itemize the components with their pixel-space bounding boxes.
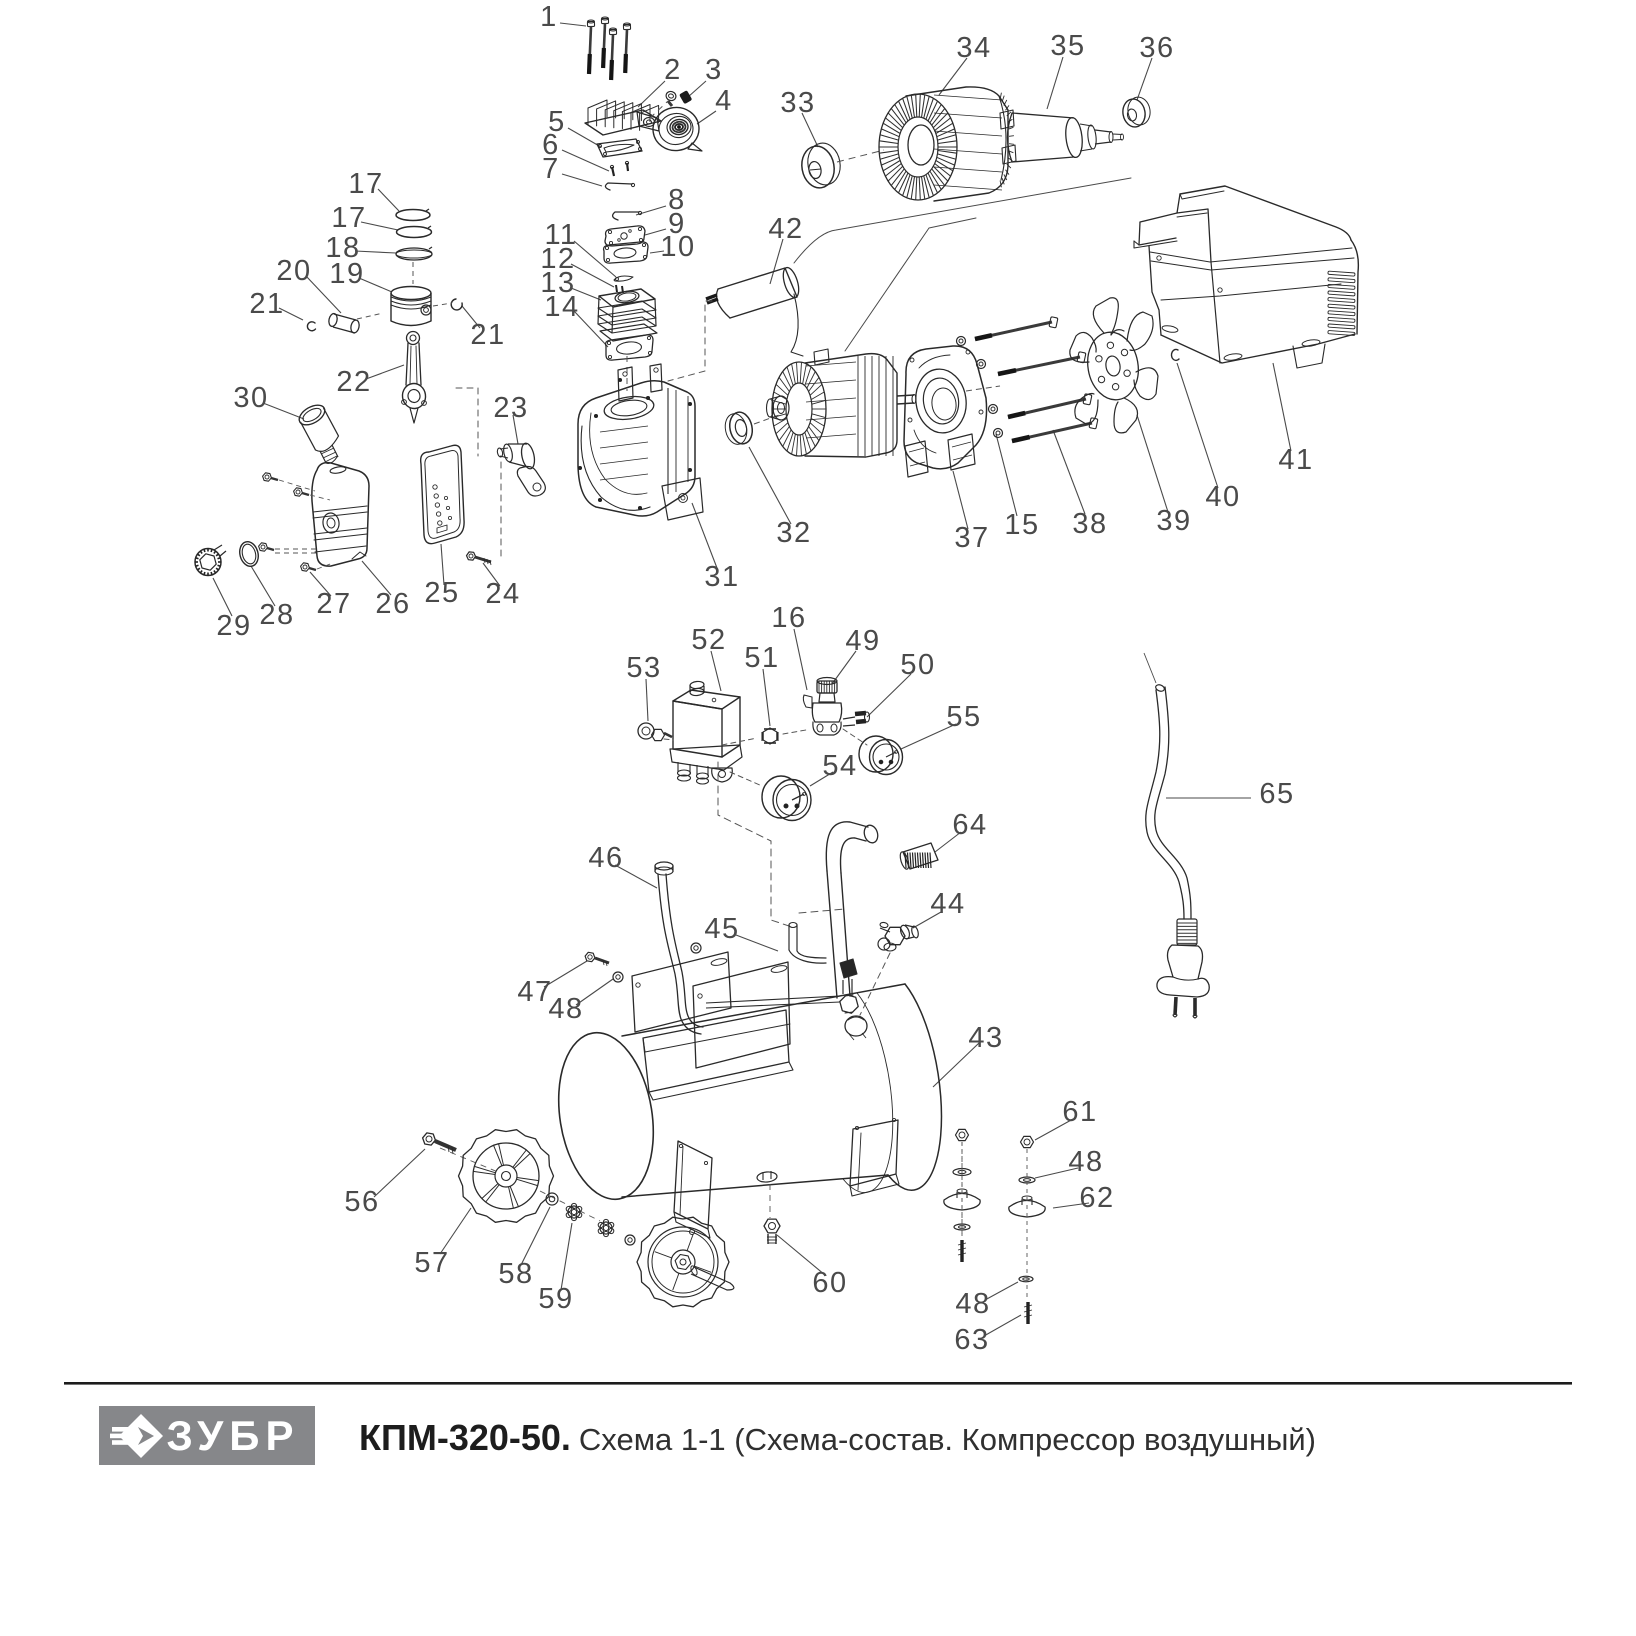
svg-text:15: 15 — [1004, 509, 1039, 541]
svg-text:65: 65 — [1259, 778, 1294, 810]
svg-text:48: 48 — [1068, 1146, 1103, 1178]
svg-text:23: 23 — [493, 392, 528, 424]
svg-text:33: 33 — [780, 87, 815, 119]
svg-text:63: 63 — [954, 1324, 989, 1356]
svg-text:48: 48 — [548, 993, 583, 1025]
svg-text:48: 48 — [955, 1288, 990, 1320]
svg-text:34: 34 — [956, 32, 991, 64]
svg-text:30: 30 — [233, 382, 268, 414]
svg-text:53: 53 — [626, 652, 661, 684]
svg-text:54: 54 — [822, 750, 857, 782]
svg-text:47: 47 — [517, 976, 552, 1008]
svg-text:49: 49 — [845, 625, 880, 657]
svg-text:43: 43 — [968, 1022, 1003, 1054]
svg-text:39: 39 — [1156, 505, 1191, 537]
svg-text:45: 45 — [704, 913, 739, 945]
svg-text:22: 22 — [336, 366, 371, 398]
svg-text:14: 14 — [544, 291, 579, 323]
svg-text:35: 35 — [1050, 30, 1085, 62]
svg-text:52: 52 — [691, 624, 726, 656]
svg-text:60: 60 — [812, 1267, 847, 1299]
svg-text:20: 20 — [276, 255, 311, 287]
svg-text:29: 29 — [216, 610, 251, 642]
svg-text:46: 46 — [588, 842, 623, 874]
svg-text:50: 50 — [900, 649, 935, 681]
svg-text:61: 61 — [1062, 1096, 1097, 1128]
svg-text:57: 57 — [414, 1247, 449, 1279]
svg-text:21: 21 — [470, 319, 505, 351]
svg-text:19: 19 — [329, 258, 364, 290]
svg-text:51: 51 — [744, 642, 779, 674]
svg-text:59: 59 — [538, 1283, 573, 1315]
svg-text:31: 31 — [704, 561, 739, 593]
svg-text:24: 24 — [485, 578, 520, 610]
svg-text:42: 42 — [768, 213, 803, 245]
svg-text:27: 27 — [316, 588, 351, 620]
svg-text:38: 38 — [1072, 508, 1107, 540]
svg-text:10: 10 — [660, 231, 695, 263]
svg-text:36: 36 — [1139, 32, 1174, 64]
svg-text:55: 55 — [946, 701, 981, 733]
svg-text:64: 64 — [952, 809, 987, 841]
svg-text:56: 56 — [344, 1186, 379, 1218]
svg-text:26: 26 — [375, 588, 410, 620]
svg-text:2: 2 — [664, 54, 682, 86]
svg-text:1: 1 — [540, 1, 558, 33]
svg-text:21: 21 — [249, 288, 284, 320]
svg-text:3: 3 — [705, 54, 723, 86]
svg-text:17: 17 — [331, 202, 366, 234]
svg-text:17: 17 — [348, 168, 383, 200]
svg-text:32: 32 — [776, 517, 811, 549]
svg-text:16: 16 — [771, 602, 806, 634]
svg-text:37: 37 — [954, 522, 989, 554]
svg-text:ЗУБР: ЗУБР — [166, 1412, 299, 1459]
svg-text:28: 28 — [259, 599, 294, 631]
svg-text:4: 4 — [715, 85, 733, 117]
svg-text:25: 25 — [424, 577, 459, 609]
svg-text:62: 62 — [1079, 1182, 1114, 1214]
svg-text:41: 41 — [1278, 444, 1313, 476]
svg-text:40: 40 — [1205, 481, 1240, 513]
svg-text:58: 58 — [498, 1258, 533, 1290]
svg-text:7: 7 — [542, 153, 560, 185]
svg-text:КПМ-320-50.Схема 1-1 (Схема-со: КПМ-320-50.Схема 1-1 (Схема-состав. Комп… — [359, 1417, 1316, 1458]
